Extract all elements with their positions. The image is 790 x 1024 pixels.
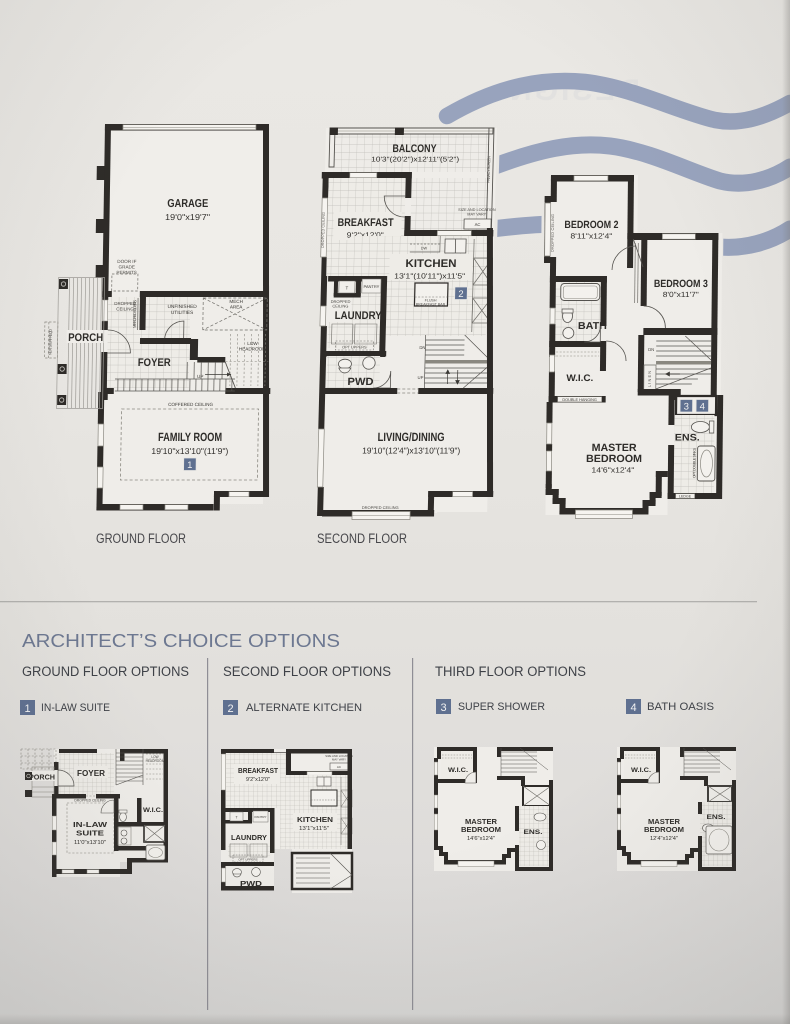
svg-text:W.I.C.: W.I.C. (143, 807, 163, 814)
svg-text:ENS.: ENS. (707, 814, 726, 821)
svg-text:FOYER: FOYER (77, 769, 105, 778)
svg-text:HEADROOM: HEADROOM (146, 759, 165, 763)
svg-text:SUITE: SUITE (76, 829, 104, 838)
svg-text:9'2"x12'0": 9'2"x12'0" (246, 777, 270, 783)
svg-text:PORCH: PORCH (29, 775, 55, 782)
svg-text:BREAKFAST: BREAKFAST (238, 766, 278, 775)
svg-text:MASTER: MASTER (465, 819, 497, 826)
svg-text:12'4"x12'4": 12'4"x12'4" (650, 836, 678, 842)
svg-text:W.I.C.: W.I.C. (631, 767, 651, 774)
svg-text:BEDROOM: BEDROOM (461, 827, 501, 834)
svg-text:MASTER: MASTER (648, 819, 680, 826)
svg-text:DROPPED CEILING: DROPPED CEILING (74, 799, 106, 803)
svg-text:13'1"x11'5": 13'1"x11'5" (299, 826, 329, 832)
svg-text:T: T (235, 816, 237, 820)
svg-text:ENS.: ENS. (524, 829, 543, 836)
svg-text:PANTRY: PANTRY (255, 815, 267, 819)
svg-text:OPT UPPERS: OPT UPPERS (238, 858, 257, 862)
svg-text:KITCHEN: KITCHEN (297, 815, 333, 824)
svg-text:11'0"x13'10": 11'0"x13'10" (74, 840, 106, 846)
svg-text:LAUNDRY: LAUNDRY (231, 835, 267, 842)
svg-text:MAY VARY: MAY VARY (332, 758, 346, 762)
svg-text:BEDROOM: BEDROOM (644, 827, 684, 834)
svg-text:14'6"x12'4": 14'6"x12'4" (467, 836, 495, 842)
svg-text:W.I.C.: W.I.C. (448, 767, 468, 774)
